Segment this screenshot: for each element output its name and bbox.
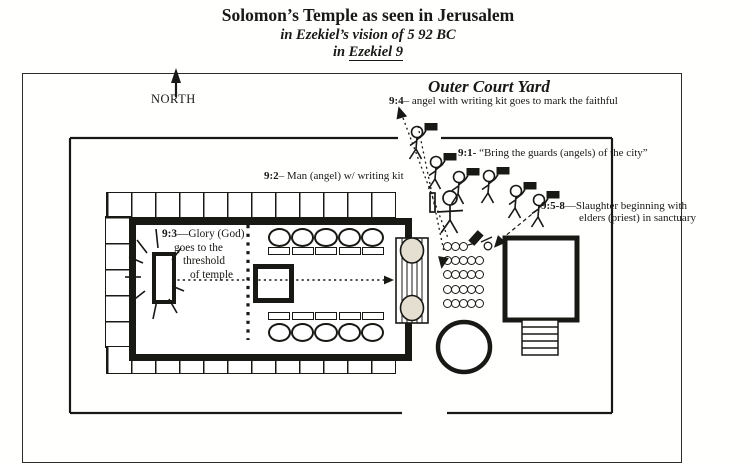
verse-text-9-5-8: —Slaughter beginning with (565, 200, 687, 212)
temple-porch (396, 238, 428, 323)
north-label: NORTH (151, 92, 196, 107)
verse-ref-9-3: 9:3 (162, 228, 177, 240)
verse-ref-9-1: 9:1- (458, 147, 476, 159)
diagram-graphics (0, 0, 750, 465)
altar-steps (522, 320, 558, 355)
pillar-boaz (401, 296, 424, 321)
slain-elder-figure (468, 230, 492, 250)
bronze-sea (438, 322, 490, 372)
pillar-jachin (401, 238, 424, 263)
temple-diagram-page: Solomon’s Temple as seen in Jerusalem in… (0, 0, 750, 465)
verse-ref-9-2: 9:2 (264, 170, 279, 182)
angel-with-writing-kit-figure (430, 191, 463, 233)
verse-ref-9-4: 9:4 (389, 95, 404, 107)
guard-figure (410, 123, 438, 159)
outer-court-yard-label: Outer Court Yard (428, 77, 550, 97)
annotation-9-3-line1: 9:3—Glory (God) (162, 228, 245, 242)
guard-figure (482, 167, 510, 203)
annotation-9-1: 9:1- “Bring the guards (angels) of the c… (458, 147, 648, 159)
annotation-9-3-line2: goes to the (162, 242, 245, 256)
annotation-9-3-line4: of temple (162, 269, 245, 283)
annotation-9-4: 9:4– angel with writing kit goes to mark… (389, 95, 618, 107)
annotation-9-5-8: 9:5-8—Slaughter beginning with elders (p… (541, 200, 696, 224)
annotation-9-5-8-line1: 9:5-8—Slaughter beginning with (541, 200, 696, 212)
annotation-9-3: 9:3—Glory (God) goes to the threshold of… (162, 228, 245, 282)
verse-text-9-2: – Man (angel) w/ writing kit (279, 170, 404, 182)
altar-of-burnt-offering (505, 238, 577, 355)
verse-text-9-3: —Glory (God) (177, 228, 244, 240)
guard-figure (429, 153, 457, 189)
verse-text-9-4: – angel with writing kit goes to mark th… (404, 95, 618, 107)
verse-text-9-1: “Bring the guards (angels) of the city” (476, 147, 647, 159)
annotation-9-2: 9:2– Man (angel) w/ writing kit (264, 170, 404, 182)
annotation-9-3-line3: threshold (162, 255, 245, 269)
annotation-9-5-8-line2: elders (priest) in sanctuary (541, 212, 696, 224)
guard-figure (452, 168, 480, 204)
verse-ref-9-5-8: 9:5-8 (541, 200, 565, 212)
